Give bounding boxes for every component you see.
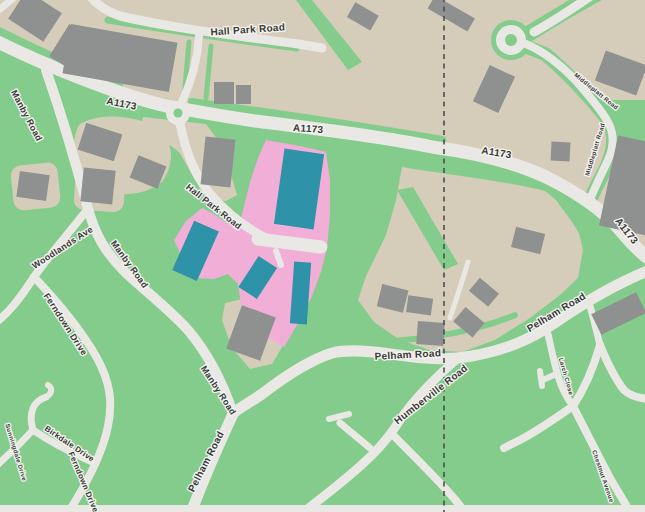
roundabout-island: [174, 109, 183, 118]
building: [214, 82, 234, 104]
building: [16, 171, 49, 201]
map-canvas[interactable]: Hall Park Road A1173 A1173 A1173 A1173 M…: [0, 0, 645, 512]
building: [406, 295, 433, 315]
street-map: Hall Park Road A1173 A1173 A1173 A1173 M…: [0, 0, 645, 512]
road-label-a1173-mid: A1173: [293, 122, 324, 135]
turning-circle-island: [505, 34, 517, 46]
building: [416, 321, 445, 346]
building: [80, 167, 115, 204]
road-larch-close-hammer-bar: [540, 371, 542, 386]
building: [236, 85, 251, 104]
road-hall-park-road-site-head: [258, 239, 321, 247]
building: [551, 141, 571, 161]
building: [201, 137, 236, 188]
